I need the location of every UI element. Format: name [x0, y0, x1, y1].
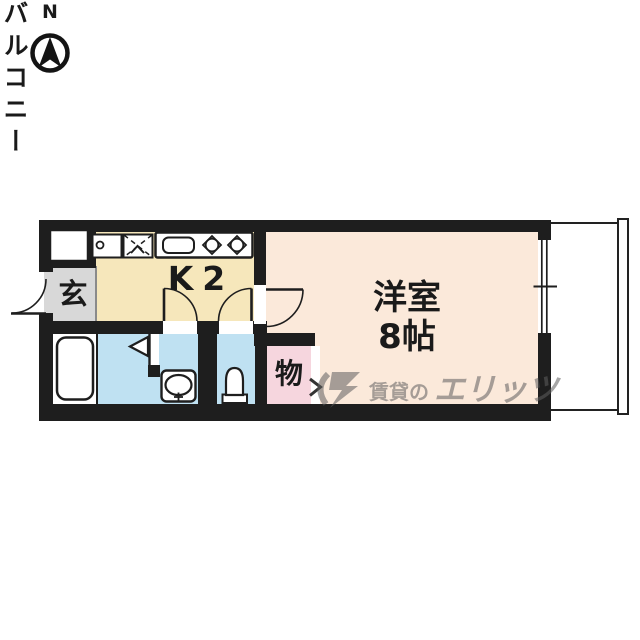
storage-door-opening — [311, 346, 320, 404]
floor-plan-canvas: N バルコニー — [0, 0, 640, 640]
storage-label: 物 — [266, 359, 312, 390]
sanitary-wall-b — [197, 321, 219, 334]
top-wall — [39, 220, 551, 232]
right-wall-upper — [538, 220, 551, 240]
washroom-stub-wall — [148, 365, 160, 377]
compass-icon — [28, 31, 72, 77]
entrance-label: 玄 — [52, 279, 94, 311]
washroom-toilet-wall — [198, 334, 217, 404]
bath-door-opening — [150, 334, 159, 366]
toilet-floor — [217, 334, 255, 404]
kitchen-room-wall-upper — [254, 232, 266, 285]
compass-north-label: N — [30, 2, 70, 23]
main-room-label: 洋室 8帖 — [352, 279, 462, 357]
balcony-rail — [617, 218, 629, 415]
balcony-label: バルコニー — [0, 0, 32, 176]
storage-top-wall — [254, 333, 315, 346]
main-room-label-line2: 8帖 — [352, 318, 462, 357]
bottom-wall — [39, 404, 551, 421]
window-opening — [538, 240, 551, 333]
right-wall-lower — [538, 333, 551, 421]
entrance-step-line — [95, 266, 97, 321]
main-room-label-line1: 洋室 — [352, 279, 462, 318]
entry-corner-wall — [39, 220, 96, 268]
sanitary-wall-a — [53, 321, 163, 334]
left-wall-lower — [39, 313, 53, 421]
bathroom-floor — [53, 334, 96, 404]
bath-washroom-wall — [96, 334, 98, 404]
entrance-door-arc — [12, 279, 46, 313]
kitchen-label: K2 — [156, 261, 246, 297]
